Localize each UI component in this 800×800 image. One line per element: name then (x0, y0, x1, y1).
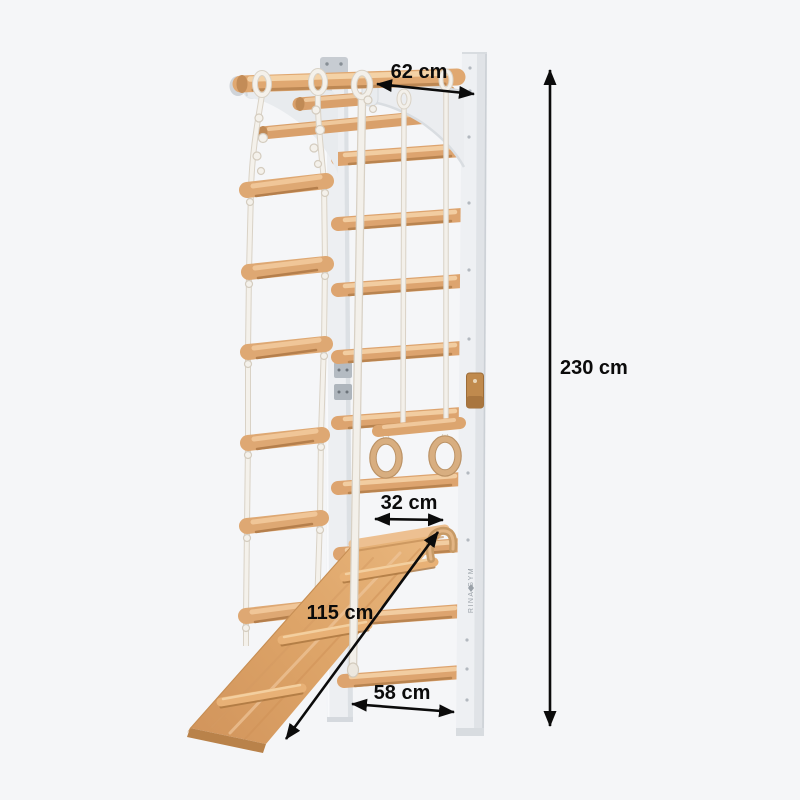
product-image: RINA GYM (0, 0, 800, 800)
dimension-label-ramp-length: 115 cm (307, 602, 374, 624)
ramp-width-arrow (375, 519, 443, 520)
dimension-label-ramp-width: 32 cm (381, 492, 438, 514)
leather-strap (467, 373, 484, 408)
wall-bars-illustration: RINA GYM (0, 0, 800, 800)
dimension-label-total-height: 230 cm (560, 357, 628, 379)
dimension-label-top-depth: 62 cm (391, 61, 448, 83)
dimension-label-base-width: 58 cm (374, 682, 431, 704)
